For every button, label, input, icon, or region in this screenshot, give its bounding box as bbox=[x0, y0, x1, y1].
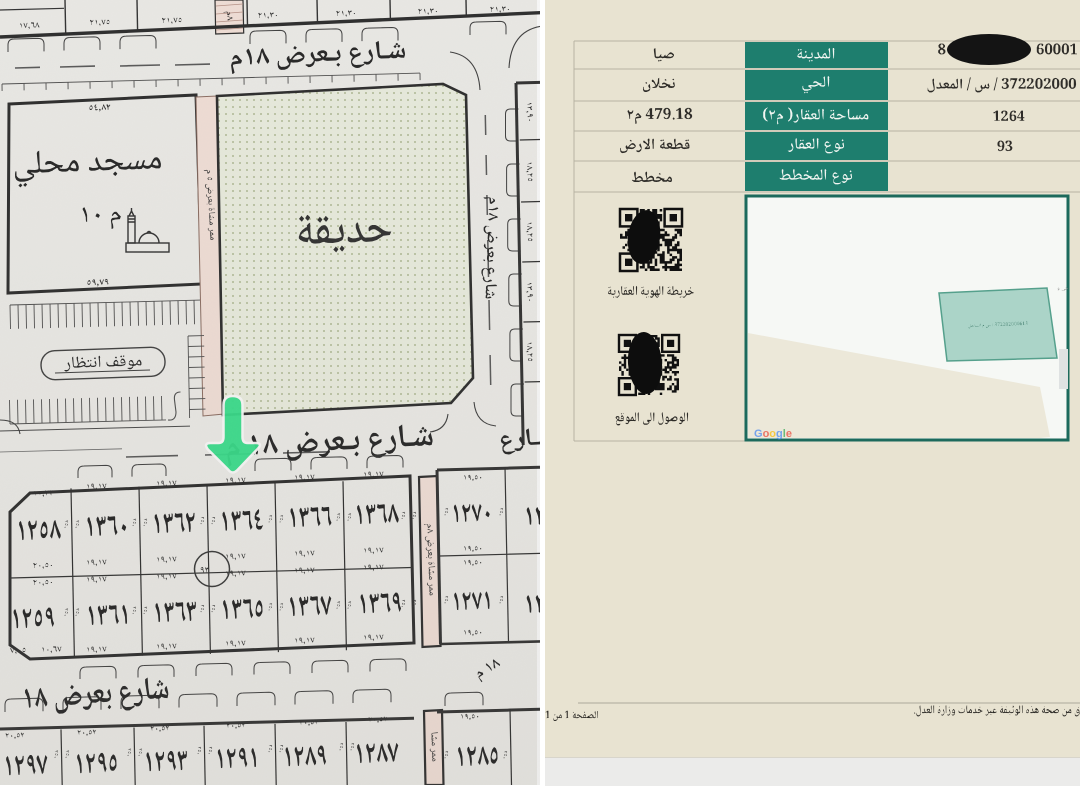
svg-text:Google: Google bbox=[754, 428, 792, 440]
